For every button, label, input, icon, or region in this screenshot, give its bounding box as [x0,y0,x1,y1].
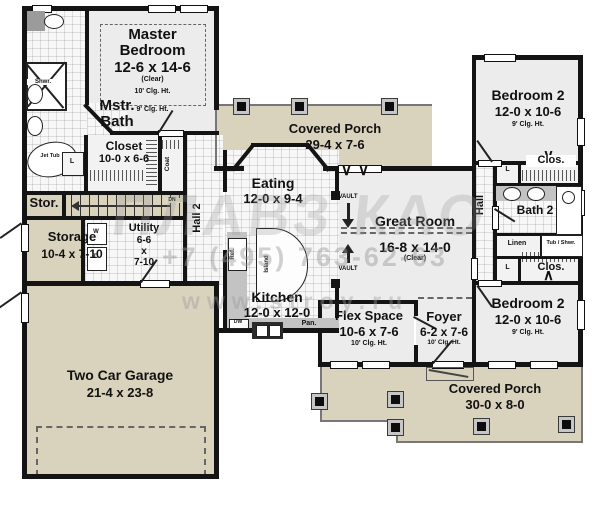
master-bedroom-clg10: 10' Clg. Ht. [100,88,205,95]
pantry-label: Pan. [292,320,326,327]
toilet-nook [27,11,45,31]
door-leaf-storage [0,222,22,239]
great-room-dims: 16-8 x 14-0 [361,240,469,255]
dishwasher-label: DW [229,320,247,325]
door-gap-bedroom2-bottom [478,280,502,287]
vault-label-upper: VAULT [330,194,366,200]
porch-post-top-2 [292,99,307,114]
french-door-v-1: ∨ [341,163,352,178]
master-bedroom-name: Master Bedroom [105,27,200,59]
coat-label: Coat [165,144,177,184]
utility-name: Utility [112,223,176,235]
post-kitchen-bottom [331,279,340,288]
bedroom2-bottom-clg: 9' Clg. Ht. [478,329,578,336]
hall-right-label: Hall [475,183,489,227]
toilet [44,14,64,29]
fridge-label: Ref. [230,234,244,274]
garage-door-dashed [36,426,206,476]
dn-label: DN [164,198,180,203]
window-bedroom2-bottom-1 [488,361,516,369]
foyer-dims: 6-2 x 7-6 [414,326,474,339]
covered-porch-bottom-floor-2 [396,420,583,443]
l-bottom-label: L [497,264,518,271]
utility-d3: 7-10 [112,258,176,269]
porch-post-bottom-1 [312,394,327,409]
utility-d2: x [112,247,176,258]
kitchen-name: Kitchen [230,290,324,305]
wall-eating-left-upper [223,150,227,192]
bath2-sink-1 [503,187,521,201]
master-bedroom-clear: (Clear) [100,76,205,83]
door-leaf-garage-exterior [0,291,22,309]
garage-dims: 21-4 x 23-8 [58,386,182,400]
island-label: Island [264,239,280,289]
hall2-label: Hall 2 [192,196,206,240]
wall-flex-top [318,300,418,304]
eating-dims: 12-0 x 9-4 [226,192,320,206]
range-burner-1 [256,325,268,337]
closet-dims: 10-0 x 6-6 [86,154,162,166]
bath2-tub-drain [562,191,575,204]
porch-top-left-edge [215,104,217,170]
bedroom2-top-dims: 12-0 x 10-6 [478,105,578,119]
porch-top-name: Covered Porch [255,122,415,136]
sink-master-2 [27,116,43,136]
window-flex-1 [330,361,358,369]
flex-clg: 10' Clg. Ht. [324,340,414,347]
mstr-bath-name: Mstr. Bath [88,98,146,130]
porch-bottom-dims: 30-0 x 8-0 [425,398,565,412]
linen-label: Linen [496,240,538,247]
garage-name: Two Car Garage [58,368,182,383]
wall-master-right [214,6,219,110]
french-door-v-2: ∨ [358,163,369,178]
stair-arrow-line [74,205,170,207]
porch-post-top-3 [382,99,397,114]
wall-hall2-left [183,131,187,285]
porch-post-bottom-4 [474,419,489,434]
wall-l-clos-bottom [518,256,521,284]
bedroom2-bottom-name: Bedroom 2 [478,296,578,311]
window-bedroom2-top [484,54,516,62]
porch-top-dims: 29-4 x 7-6 [255,138,415,152]
window-flex-2 [362,361,390,369]
stor-label: Stor. [24,196,64,210]
great-room-name: Great Room [361,214,469,229]
wall-garage-right [214,281,219,479]
window-master-1 [148,5,176,13]
bedroom2-top-clg: 9' Clg. Ht. [478,121,578,128]
closet-name: Closet [88,140,160,153]
wall-garage-bottom [22,474,219,479]
wall-garage-top [22,281,218,286]
floor-plan: ∨ ∨ ∨ ∧ Shwr. Jet Tub L W D Ref. DW Pan.… [0,0,600,508]
flex-dims: 10-6 x 7-6 [324,325,414,339]
window-master-2 [180,5,208,13]
vault-label-lower: VAULT [330,266,366,272]
clos-top-label: Clos. [526,155,576,167]
eating-name: Eating [228,176,318,191]
wall-l-clos-top [518,161,521,183]
wall-stairs-bottom [60,216,185,220]
porch-post-bottom-2 [388,392,403,407]
clos-bottom-label: Clos. [526,262,576,274]
porch-post-bottom-3 [388,420,403,435]
great-room-ridge-dash-2 [341,232,472,234]
master-closet-rod-hatch [90,170,146,181]
great-room-floor [339,170,472,302]
porch-post-top-1 [234,99,249,114]
door-gap-hall-great [471,258,478,280]
door-gap-garage-exterior [21,293,29,323]
kitchen-dims: 12-0 x 12-0 [228,306,326,320]
foyer-clg: 10' Clg. Ht. [414,340,474,347]
vault-arrow-down-shaft [347,203,350,219]
master-bedroom-dims: 12-6 x 14-6 [100,60,205,76]
porch-bottom-right-edge [581,365,583,443]
bath2-sink-2 [527,187,545,201]
foyer-open-dash [418,297,472,299]
storage-dims: 10-4 x 7-10 [26,248,118,261]
bedroom2-bottom-dims: 12-0 x 10-6 [478,313,578,327]
stair-arrow-head [66,201,79,211]
utility-d1: 6-6 [112,236,176,247]
flex-name: Flex Space [324,309,414,323]
bath2-name: Bath 2 [505,204,565,217]
l-top-label: L [497,166,518,173]
great-room-clear: (Clear) [361,255,469,262]
door-gap-garage-hall [140,280,170,288]
bedroom2-top-name: Bedroom 2 [478,88,578,103]
vault-arrow-up-shaft [347,247,350,263]
master-linen-label: L [62,158,82,165]
wall-bedroom-left [85,6,89,105]
sink-master-1 [27,84,43,104]
porch-post-bottom-5 [559,417,574,432]
window-bedroom2-bottom-right [577,300,585,330]
window-bedroom2-top-right [577,118,585,146]
vault-arrow-down-head [342,219,354,234]
door-gap-master-entry [158,130,184,137]
porch-bottom-bottom-edge [396,441,583,443]
wall-great-west-upper [335,171,339,193]
wall-porch-back-left [214,166,244,171]
storage-name: Storage [26,230,118,244]
foyer-name: Foyer [418,310,470,324]
window-bedroom2-bottom-2 [530,361,558,369]
porch-bottom-name: Covered Porch [425,382,565,396]
range-burner-2 [269,325,281,337]
porch-bottom-step-edge [320,420,398,422]
tub-shwr-label: Tub / Shwr. [541,241,581,247]
clos-top-rod-hatch [522,170,578,181]
